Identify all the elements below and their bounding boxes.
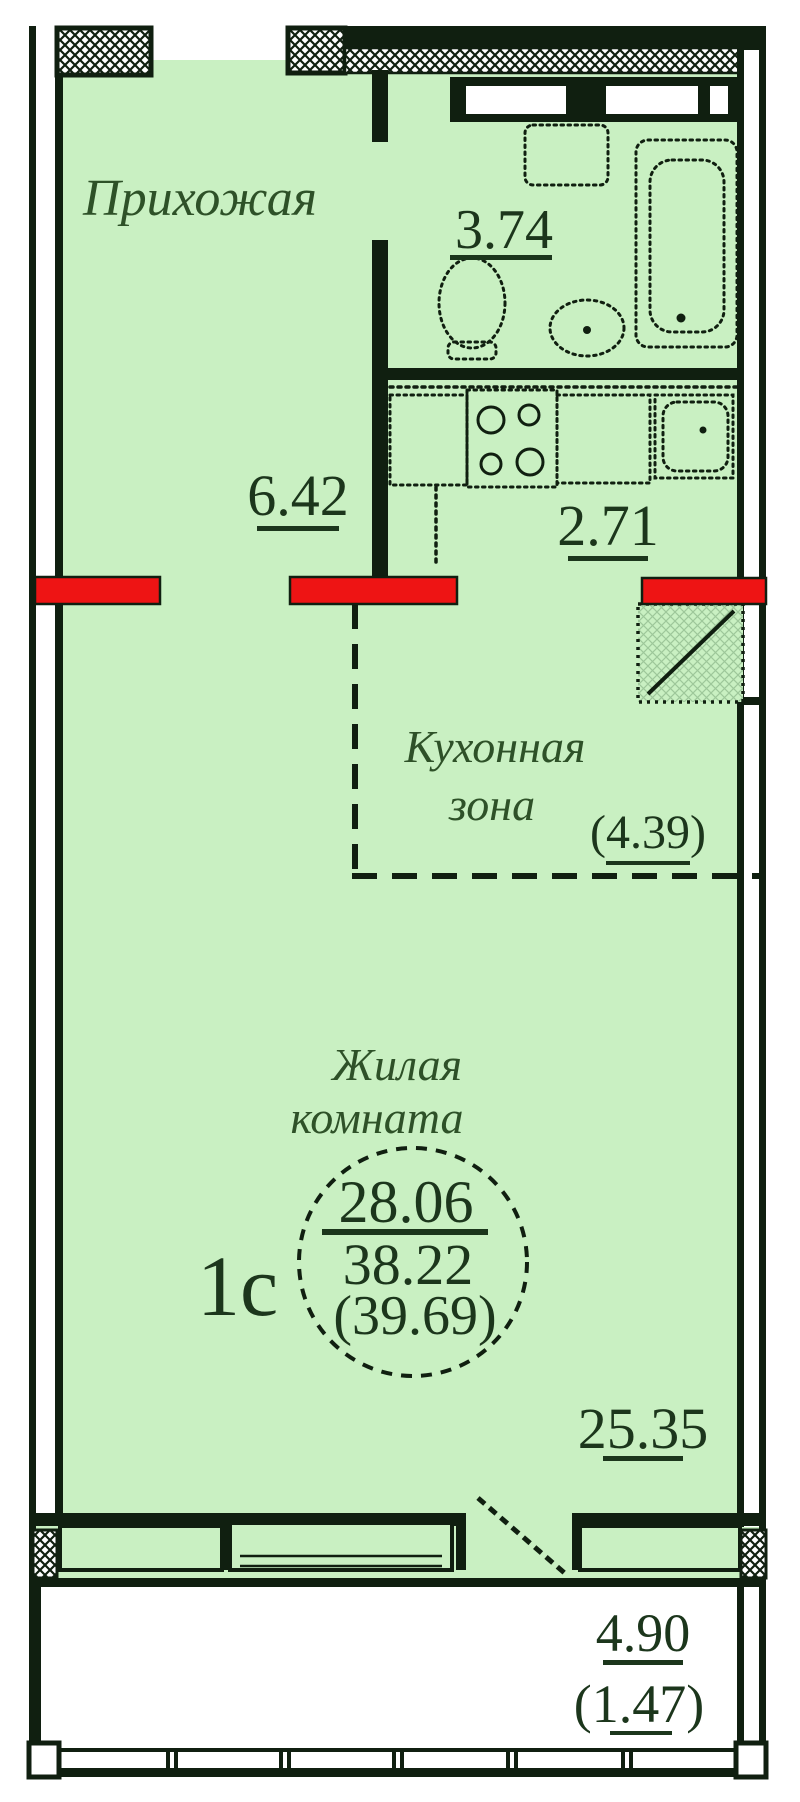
window-icon: [60, 1526, 222, 1570]
balcony-area-coefficient: (1.47): [574, 1674, 704, 1734]
living-room-label-line2: комната: [291, 1092, 464, 1143]
wall-top-left-block: [57, 28, 151, 75]
floor-base: [35, 0, 763, 1777]
wall-balcony-right-inner: [737, 1587, 744, 1745]
red-marker-left: [35, 577, 160, 604]
wall-top: [345, 26, 740, 48]
kitchen-zone-label-line2: зона: [448, 779, 535, 830]
red-marker-right: [642, 578, 766, 604]
bathroom-area: 3.74: [455, 199, 553, 261]
window-icon: [580, 1526, 740, 1570]
kitchen-zone-label-line1: Кухонная: [404, 721, 586, 772]
wall-left-inner: [55, 26, 63, 1513]
stamp-area-total: (39.69): [333, 1285, 496, 1347]
living-room-label-line1: Жилая: [330, 1039, 462, 1090]
window-icon: [230, 1523, 452, 1570]
floor-plan-canvas: Прихожая 3.74 6.42 2.71 Кухонная зона (4…: [0, 0, 800, 1802]
wall-hall-kitchen: [372, 380, 388, 578]
wall-entry-jamb: [288, 28, 345, 73]
balcony-area: 4.90: [596, 1603, 691, 1663]
hallway-area: 6.42: [247, 463, 349, 528]
apartment-type-label: 1с: [197, 1238, 278, 1334]
stamp-living-area: 28.06: [339, 1169, 474, 1235]
wall-left-outer: [29, 26, 36, 1578]
floor-plan: Прихожая 3.74 6.42 2.71 Кухонная зона (4…: [0, 0, 800, 1802]
vent-shaft-icon: [638, 604, 743, 702]
entrance-opening: [151, 0, 288, 60]
kitchen-zone-area: (4.39): [590, 806, 706, 859]
red-wall-markers: [35, 577, 766, 604]
wall-bath-bottom: [372, 368, 740, 380]
wall-bath-stub: [372, 70, 388, 142]
wall-bath: [372, 240, 388, 380]
kitchen-area: 2.71: [557, 493, 659, 558]
wall-top-hatch: [345, 48, 740, 73]
wall-balcony-top: [29, 1578, 766, 1587]
wall-right-inner: [737, 26, 744, 1527]
living-room-area: 25.35: [578, 1396, 709, 1461]
hallway-label: Прихожая: [82, 170, 317, 227]
railing-icon: [29, 1743, 766, 1777]
red-marker-middle: [290, 577, 457, 604]
